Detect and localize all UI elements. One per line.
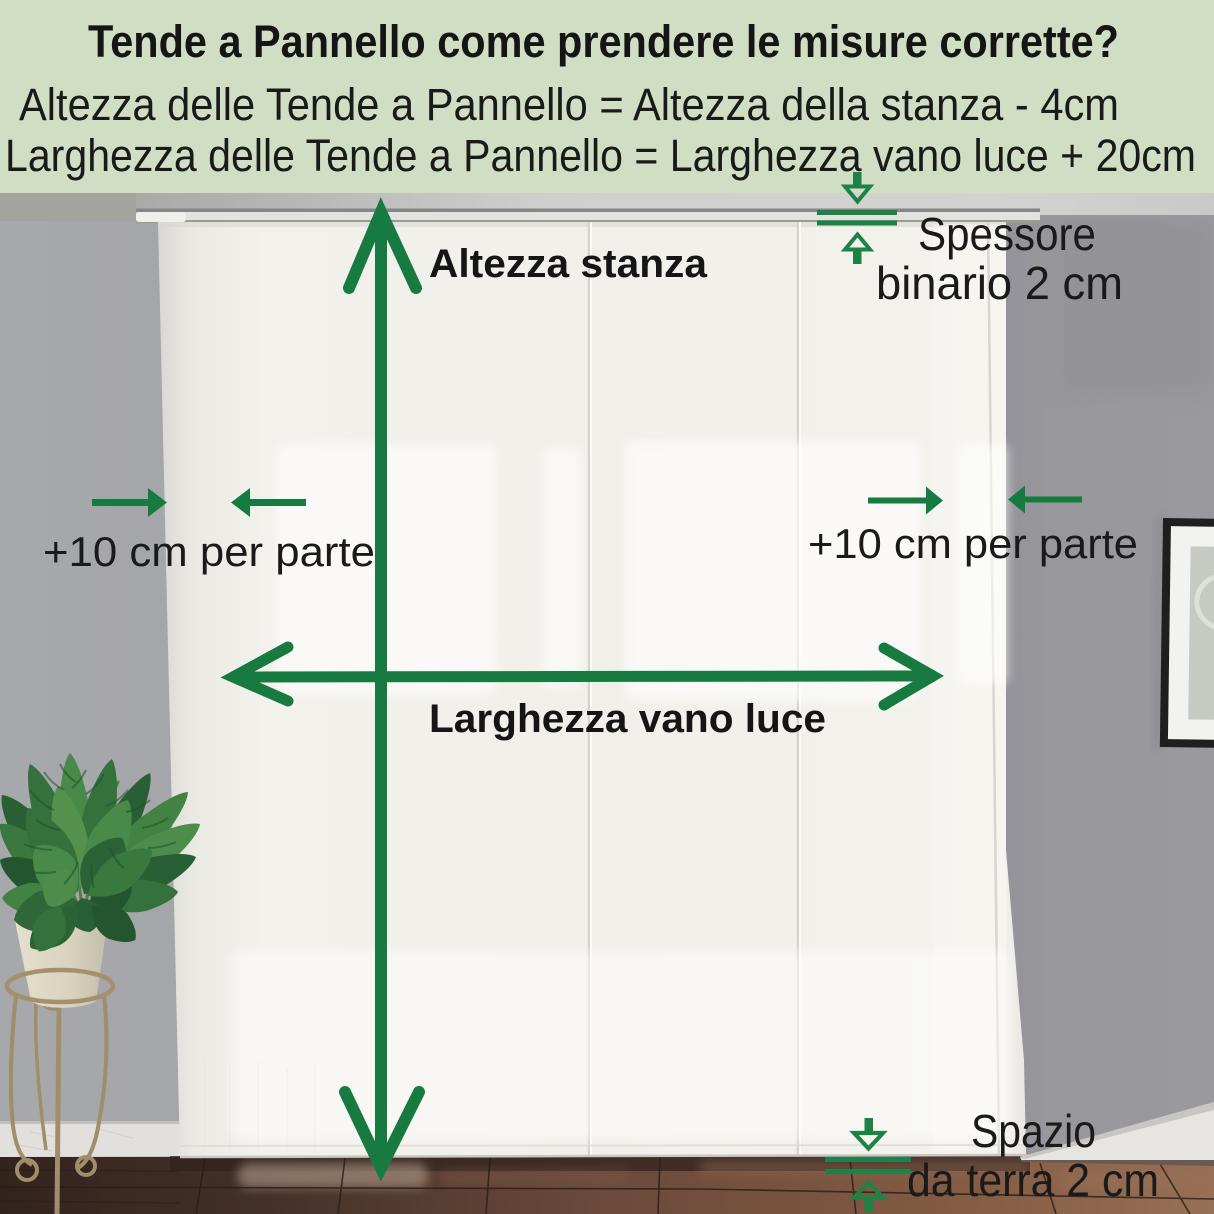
svg-text:Larghezza delle Tende a Pannel: Larghezza delle Tende a Pannello = Largh… (5, 130, 1196, 181)
svg-text:da terra 2 cm: da terra 2 cm (907, 1154, 1159, 1206)
svg-text:Spazio: Spazio (971, 1105, 1096, 1157)
svg-text:+10 cm per parte: +10 cm per parte (43, 528, 375, 575)
svg-text:+10 cm per parte: +10 cm per parte (808, 520, 1138, 567)
svg-text:Altezza stanza: Altezza stanza (429, 242, 708, 286)
svg-text:Spessore: Spessore (918, 208, 1096, 260)
svg-text:Tende a Pannello come prendere: Tende a Pannello come prendere le misure… (88, 16, 1119, 67)
svg-text:Larghezza vano luce: Larghezza vano luce (429, 697, 826, 741)
svg-text:Altezza delle Tende a Pannello: Altezza delle Tende a Pannello = Altezza… (19, 79, 1119, 130)
svg-text:binario 2 cm: binario 2 cm (876, 257, 1123, 309)
